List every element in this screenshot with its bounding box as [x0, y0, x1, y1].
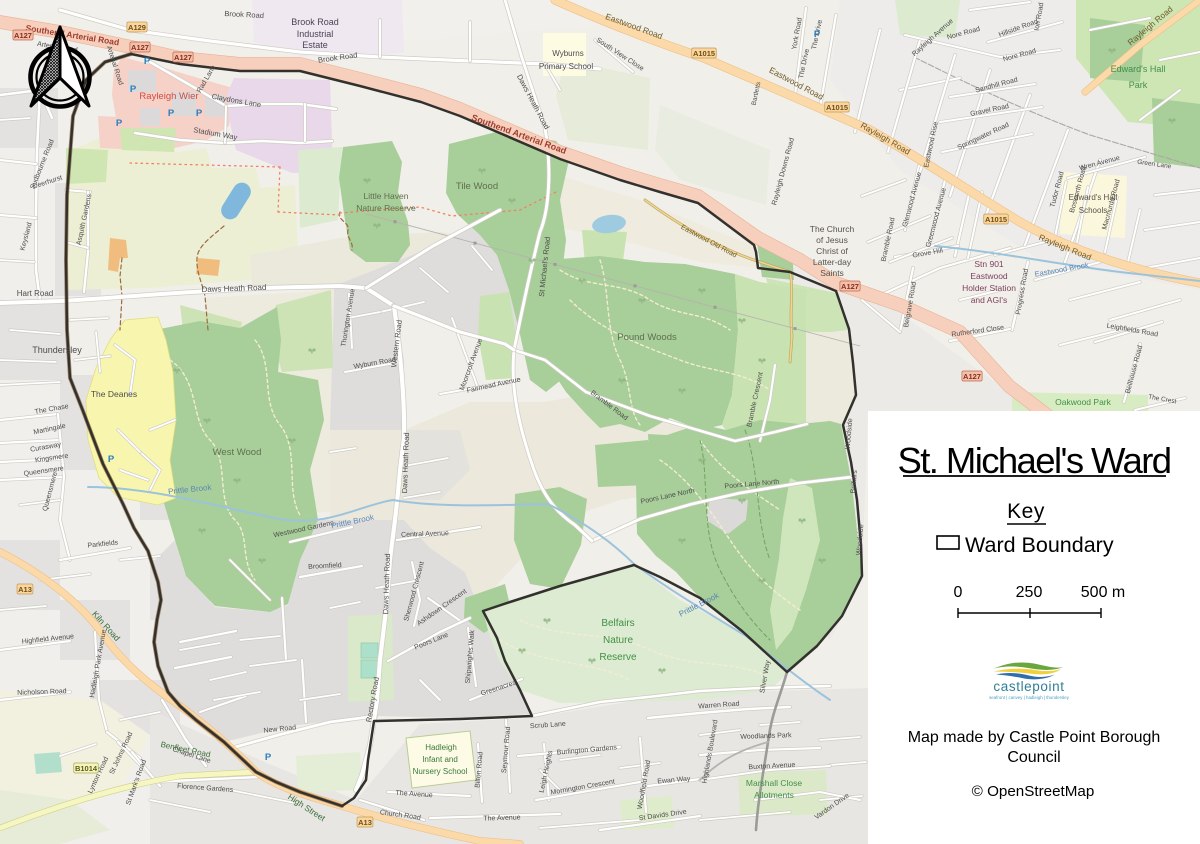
- svg-text:A1015: A1015: [985, 215, 1007, 224]
- svg-text:Stn 901: Stn 901: [974, 259, 1004, 269]
- svg-text:The Avenue: The Avenue: [483, 814, 521, 822]
- svg-text:A127: A127: [131, 43, 149, 52]
- svg-text:Eastwood: Eastwood: [970, 271, 1008, 281]
- svg-text:Schools: Schools: [1079, 206, 1107, 215]
- svg-text:Infant and: Infant and: [422, 755, 458, 764]
- svg-text:Hadleigh: Hadleigh: [425, 743, 457, 752]
- svg-text:Belfairs: Belfairs: [601, 618, 634, 629]
- svg-text:Nature: Nature: [603, 635, 633, 646]
- svg-text:Estate: Estate: [302, 40, 328, 50]
- svg-text:A127: A127: [174, 53, 192, 62]
- svg-text:Marshall Close: Marshall Close: [746, 778, 802, 788]
- svg-text:0: 0: [954, 584, 963, 601]
- svg-text:© OpenStreetMap: © OpenStreetMap: [972, 783, 1095, 800]
- svg-text:Brook Road: Brook Road: [291, 17, 339, 27]
- svg-text:Nature Reserve: Nature Reserve: [356, 203, 416, 213]
- svg-text:Allotments: Allotments: [754, 790, 794, 800]
- svg-text:The Deanes: The Deanes: [91, 389, 137, 399]
- svg-text:A127: A127: [963, 372, 981, 381]
- svg-text:Wyburns: Wyburns: [552, 49, 584, 58]
- svg-text:Map made by Castle Point Borou: Map made by Castle Point Borough: [908, 729, 1161, 746]
- svg-text:P: P: [144, 56, 151, 67]
- svg-text:seafront | canvey | hadlei: seafront | canvey | hadleigh | thundersl…: [989, 695, 1070, 700]
- svg-text:P: P: [130, 84, 137, 95]
- svg-text:Primary School: Primary School: [539, 62, 593, 71]
- svg-text:Council: Council: [1007, 749, 1060, 766]
- svg-text:Little Haven: Little Haven: [364, 191, 409, 201]
- svg-text:Oakwood Park: Oakwood Park: [1055, 397, 1111, 407]
- svg-text:Thundersley: Thundersley: [32, 345, 82, 355]
- svg-text:St. Michael's Ward: St. Michael's Ward: [898, 440, 1171, 481]
- svg-text:P: P: [814, 29, 821, 40]
- svg-text:The Church: The Church: [810, 224, 855, 234]
- svg-text:A1015: A1015: [693, 49, 715, 58]
- svg-text:Latter-day: Latter-day: [813, 257, 852, 267]
- svg-text:B1014: B1014: [75, 764, 98, 773]
- svg-text:Holder Station: Holder Station: [962, 283, 1016, 293]
- svg-text:West Wood: West Wood: [213, 447, 262, 458]
- svg-text:Reserve: Reserve: [599, 652, 637, 663]
- svg-text:castlepoint: castlepoint: [993, 679, 1064, 694]
- svg-text:Hart Road: Hart Road: [17, 289, 53, 298]
- svg-text:P: P: [168, 108, 175, 119]
- svg-text:A127: A127: [14, 31, 32, 40]
- svg-text:Ward Boundary: Ward Boundary: [965, 533, 1114, 557]
- svg-text:Key: Key: [1007, 500, 1045, 523]
- svg-text:P: P: [108, 454, 115, 465]
- svg-text:Industrial: Industrial: [297, 29, 334, 39]
- svg-text:P: P: [265, 752, 272, 763]
- svg-text:Christ of: Christ of: [816, 246, 848, 256]
- svg-text:A13: A13: [358, 818, 372, 827]
- svg-text:Rayleigh Wier: Rayleigh Wier: [139, 91, 198, 102]
- svg-text:Saints: Saints: [820, 268, 844, 278]
- svg-text:P: P: [196, 108, 203, 119]
- svg-text:500 m: 500 m: [1081, 584, 1125, 601]
- svg-text:Pound Woods: Pound Woods: [617, 332, 677, 343]
- svg-text:of Jesus: of Jesus: [816, 235, 848, 245]
- svg-text:A13: A13: [18, 585, 32, 594]
- svg-text:Nursery School: Nursery School: [413, 767, 468, 776]
- svg-text:A129: A129: [128, 23, 146, 32]
- svg-text:Tile Wood: Tile Wood: [456, 181, 498, 192]
- svg-text:A127: A127: [841, 282, 859, 291]
- svg-text:Park: Park: [1129, 80, 1148, 90]
- svg-text:250: 250: [1016, 584, 1043, 601]
- svg-text:and AGI's: and AGI's: [971, 295, 1008, 305]
- svg-text:P: P: [116, 118, 123, 129]
- svg-text:A1015: A1015: [826, 103, 848, 112]
- svg-text:Edward's Hall: Edward's Hall: [1111, 64, 1166, 74]
